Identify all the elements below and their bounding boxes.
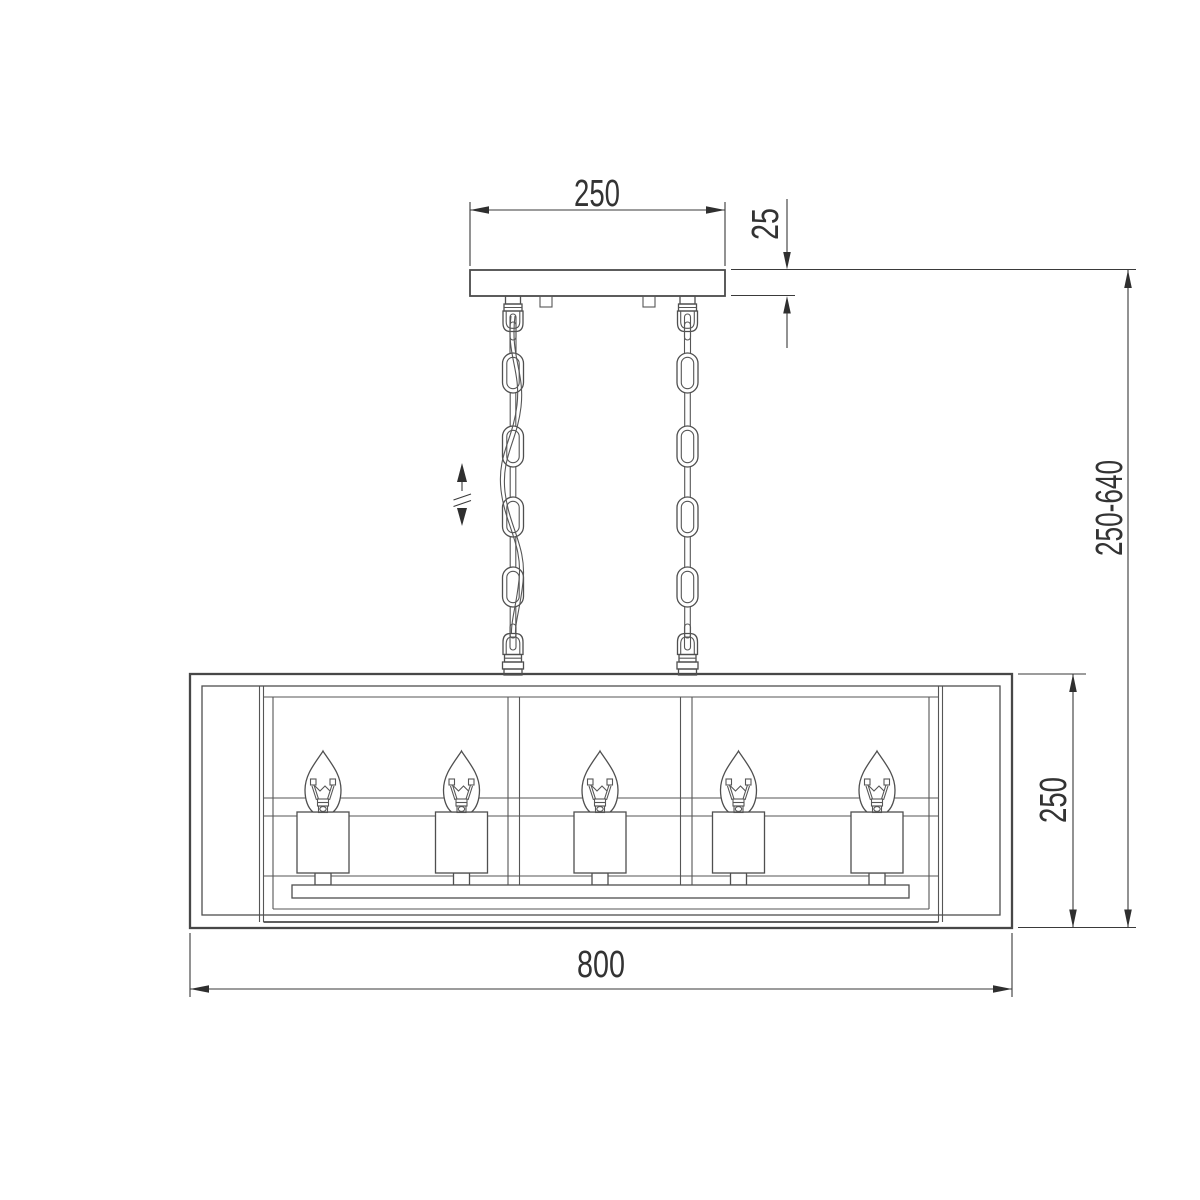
dim-overall-height-label: 250-640 xyxy=(1089,460,1131,556)
dim-body-height-label: 250 xyxy=(1033,777,1075,823)
technical-drawing: 250 25 250-640 250 800 xyxy=(0,0,1200,1200)
up-down-arrow-icon xyxy=(454,463,472,526)
bulb-3 xyxy=(574,751,626,885)
chandelier-body xyxy=(190,674,1012,928)
dim-body-height: 250 xyxy=(1018,674,1086,928)
canopy-tab-left xyxy=(540,296,552,307)
bulb-4 xyxy=(713,751,765,885)
canopy-tab-right xyxy=(643,296,655,307)
bulb-2 xyxy=(436,751,488,885)
dim-body-width-label: 800 xyxy=(577,944,625,986)
ceiling-plate xyxy=(470,270,725,307)
dim-overall-height: 250-640 xyxy=(731,270,1136,928)
right-chain xyxy=(677,296,698,675)
bulb-1 xyxy=(297,751,349,885)
dim-canopy-thickness-label: 25 xyxy=(745,208,787,240)
dim-canopy-width: 250 xyxy=(470,173,725,266)
dim-canopy-thickness: 25 xyxy=(731,199,795,348)
dim-canopy-width-label: 250 xyxy=(574,173,620,215)
bulb-tray xyxy=(292,885,909,898)
bulb-5 xyxy=(851,751,903,885)
left-chain xyxy=(500,296,523,675)
dim-body-width: 800 xyxy=(190,933,1012,997)
